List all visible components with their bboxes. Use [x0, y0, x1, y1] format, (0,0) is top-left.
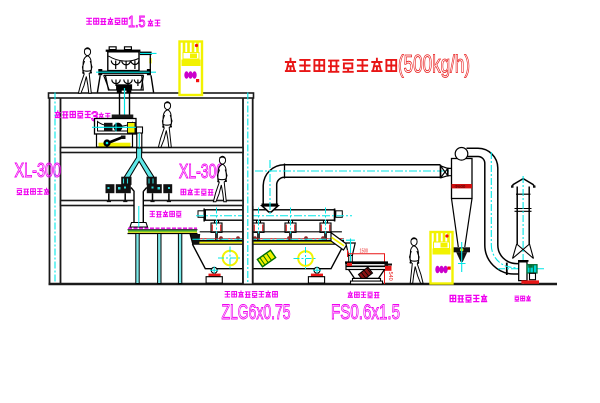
svg-text:1.5: 1.5: [128, 14, 146, 31]
svg-text:FS0.6x1.5: FS0.6x1.5: [331, 300, 400, 324]
svg-text:1500: 1500: [360, 249, 369, 255]
svg-text:XL-300: XL-300: [179, 161, 224, 183]
svg-text:540: 540: [387, 272, 393, 281]
svg-text:XL-300: XL-300: [15, 160, 62, 182]
svg-text:ZLG6x0.75: ZLG6x0.75: [222, 300, 291, 324]
svg-text:Φ600: Φ600: [455, 184, 466, 189]
svg-text:(500kg/h): (500kg/h): [398, 51, 470, 79]
